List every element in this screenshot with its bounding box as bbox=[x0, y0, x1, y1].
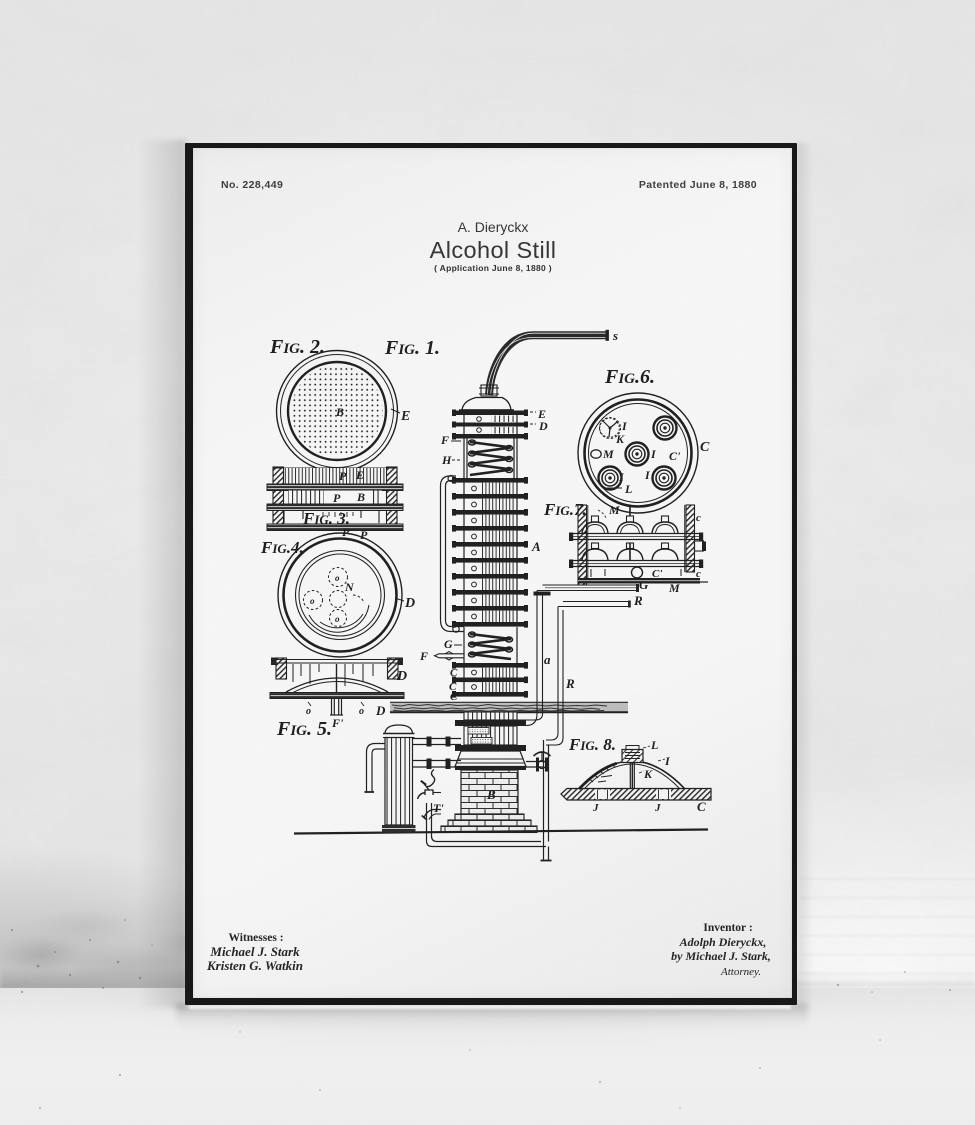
svg-text:C': C' bbox=[652, 568, 662, 580]
svg-text:I: I bbox=[650, 447, 657, 461]
svg-text:J: J bbox=[654, 802, 661, 814]
svg-text:c: c bbox=[696, 512, 701, 524]
svg-text:A: A bbox=[531, 539, 541, 554]
svg-text:I: I bbox=[621, 419, 628, 433]
svg-text:N: N bbox=[344, 580, 355, 594]
svg-text:o: o bbox=[306, 706, 311, 717]
svg-text:C: C bbox=[697, 799, 706, 814]
svg-text:I: I bbox=[618, 470, 625, 484]
svg-text:FIG.7.: FIG.7. bbox=[543, 500, 587, 519]
svg-text:o: o bbox=[310, 596, 315, 606]
svg-text:Michael J. Stark: Michael J. Stark bbox=[209, 944, 300, 959]
svg-text:Patented June 8, 1880: Patented June 8, 1880 bbox=[639, 179, 757, 191]
svg-text:C: C bbox=[450, 691, 458, 703]
svg-text:P: P bbox=[342, 525, 350, 539]
svg-text:o: o bbox=[335, 573, 340, 583]
svg-text:Alcohol Still: Alcohol Still bbox=[430, 237, 557, 263]
svg-text:H: H bbox=[441, 453, 452, 467]
svg-text:E: E bbox=[537, 407, 546, 421]
svg-text:R: R bbox=[565, 676, 575, 691]
svg-text:P: P bbox=[360, 528, 368, 542]
svg-text:F: F bbox=[419, 649, 428, 663]
svg-text:I: I bbox=[644, 468, 651, 482]
svg-text:o: o bbox=[359, 706, 364, 717]
svg-text:FIG. 1.: FIG. 1. bbox=[384, 337, 440, 359]
svg-text:FIG. 5.: FIG. 5. bbox=[276, 718, 332, 740]
svg-text:a: a bbox=[544, 652, 551, 667]
svg-text:C: C bbox=[449, 681, 457, 693]
svg-text:Attorney.: Attorney. bbox=[720, 966, 761, 978]
svg-text:D: D bbox=[375, 703, 386, 718]
svg-text:P: P bbox=[339, 469, 347, 483]
svg-text:I: I bbox=[664, 754, 671, 768]
svg-text:L: L bbox=[650, 738, 658, 752]
svg-text:Witnesses :: Witnesses : bbox=[228, 932, 283, 944]
svg-text:G: G bbox=[444, 637, 453, 651]
svg-text:FIG. 2.: FIG. 2. bbox=[269, 336, 325, 358]
svg-text:K: K bbox=[615, 432, 625, 446]
svg-text:G: G bbox=[639, 577, 649, 592]
svg-text:T': T' bbox=[433, 801, 444, 815]
svg-text:F: F bbox=[440, 433, 449, 447]
svg-text:Inventor :: Inventor : bbox=[703, 922, 752, 934]
svg-text:L: L bbox=[624, 482, 632, 496]
svg-text:B: B bbox=[356, 490, 365, 504]
svg-text:FIG.6.: FIG.6. bbox=[604, 366, 655, 388]
svg-text:J: J bbox=[592, 802, 599, 814]
svg-text:B: B bbox=[335, 405, 344, 419]
svg-text:Kristen G. Watkin: Kristen G. Watkin bbox=[206, 958, 303, 973]
svg-text:FIG. 8.: FIG. 8. bbox=[568, 735, 616, 754]
svg-text:D: D bbox=[404, 596, 415, 611]
svg-text:M: M bbox=[608, 503, 620, 517]
svg-text:M: M bbox=[668, 581, 680, 595]
svg-text:B: B bbox=[486, 787, 496, 802]
svg-text:F': F' bbox=[331, 716, 344, 730]
svg-text:C: C bbox=[450, 667, 458, 679]
svg-text:Adolph Dieryckx,: Adolph Dieryckx, bbox=[679, 935, 767, 949]
svg-text:o: o bbox=[335, 614, 340, 624]
svg-text:M: M bbox=[602, 447, 614, 461]
svg-text:D: D bbox=[538, 419, 548, 433]
svg-text:D: D bbox=[396, 669, 407, 684]
svg-text:A. Dieryckx: A. Dieryckx bbox=[458, 219, 529, 235]
svg-text:C': C' bbox=[669, 449, 681, 463]
svg-text:P: P bbox=[333, 491, 341, 505]
svg-text:by Michael J. Stark,: by Michael J. Stark, bbox=[671, 949, 771, 963]
svg-text:K: K bbox=[643, 767, 653, 781]
svg-text:No. 228,449: No. 228,449 bbox=[221, 179, 283, 191]
svg-text:R: R bbox=[633, 593, 643, 608]
svg-text:E: E bbox=[400, 409, 410, 424]
svg-text:FIG. 3.: FIG. 3. bbox=[302, 509, 350, 528]
svg-text:E: E bbox=[355, 468, 364, 482]
svg-text:( Application June 8, 1880 ): ( Application June 8, 1880 ) bbox=[434, 263, 552, 273]
svg-text:c: c bbox=[696, 568, 701, 580]
svg-text:FIG.4.: FIG.4. bbox=[260, 538, 304, 557]
svg-text:C: C bbox=[700, 440, 710, 455]
svg-text:s: s bbox=[612, 328, 618, 343]
